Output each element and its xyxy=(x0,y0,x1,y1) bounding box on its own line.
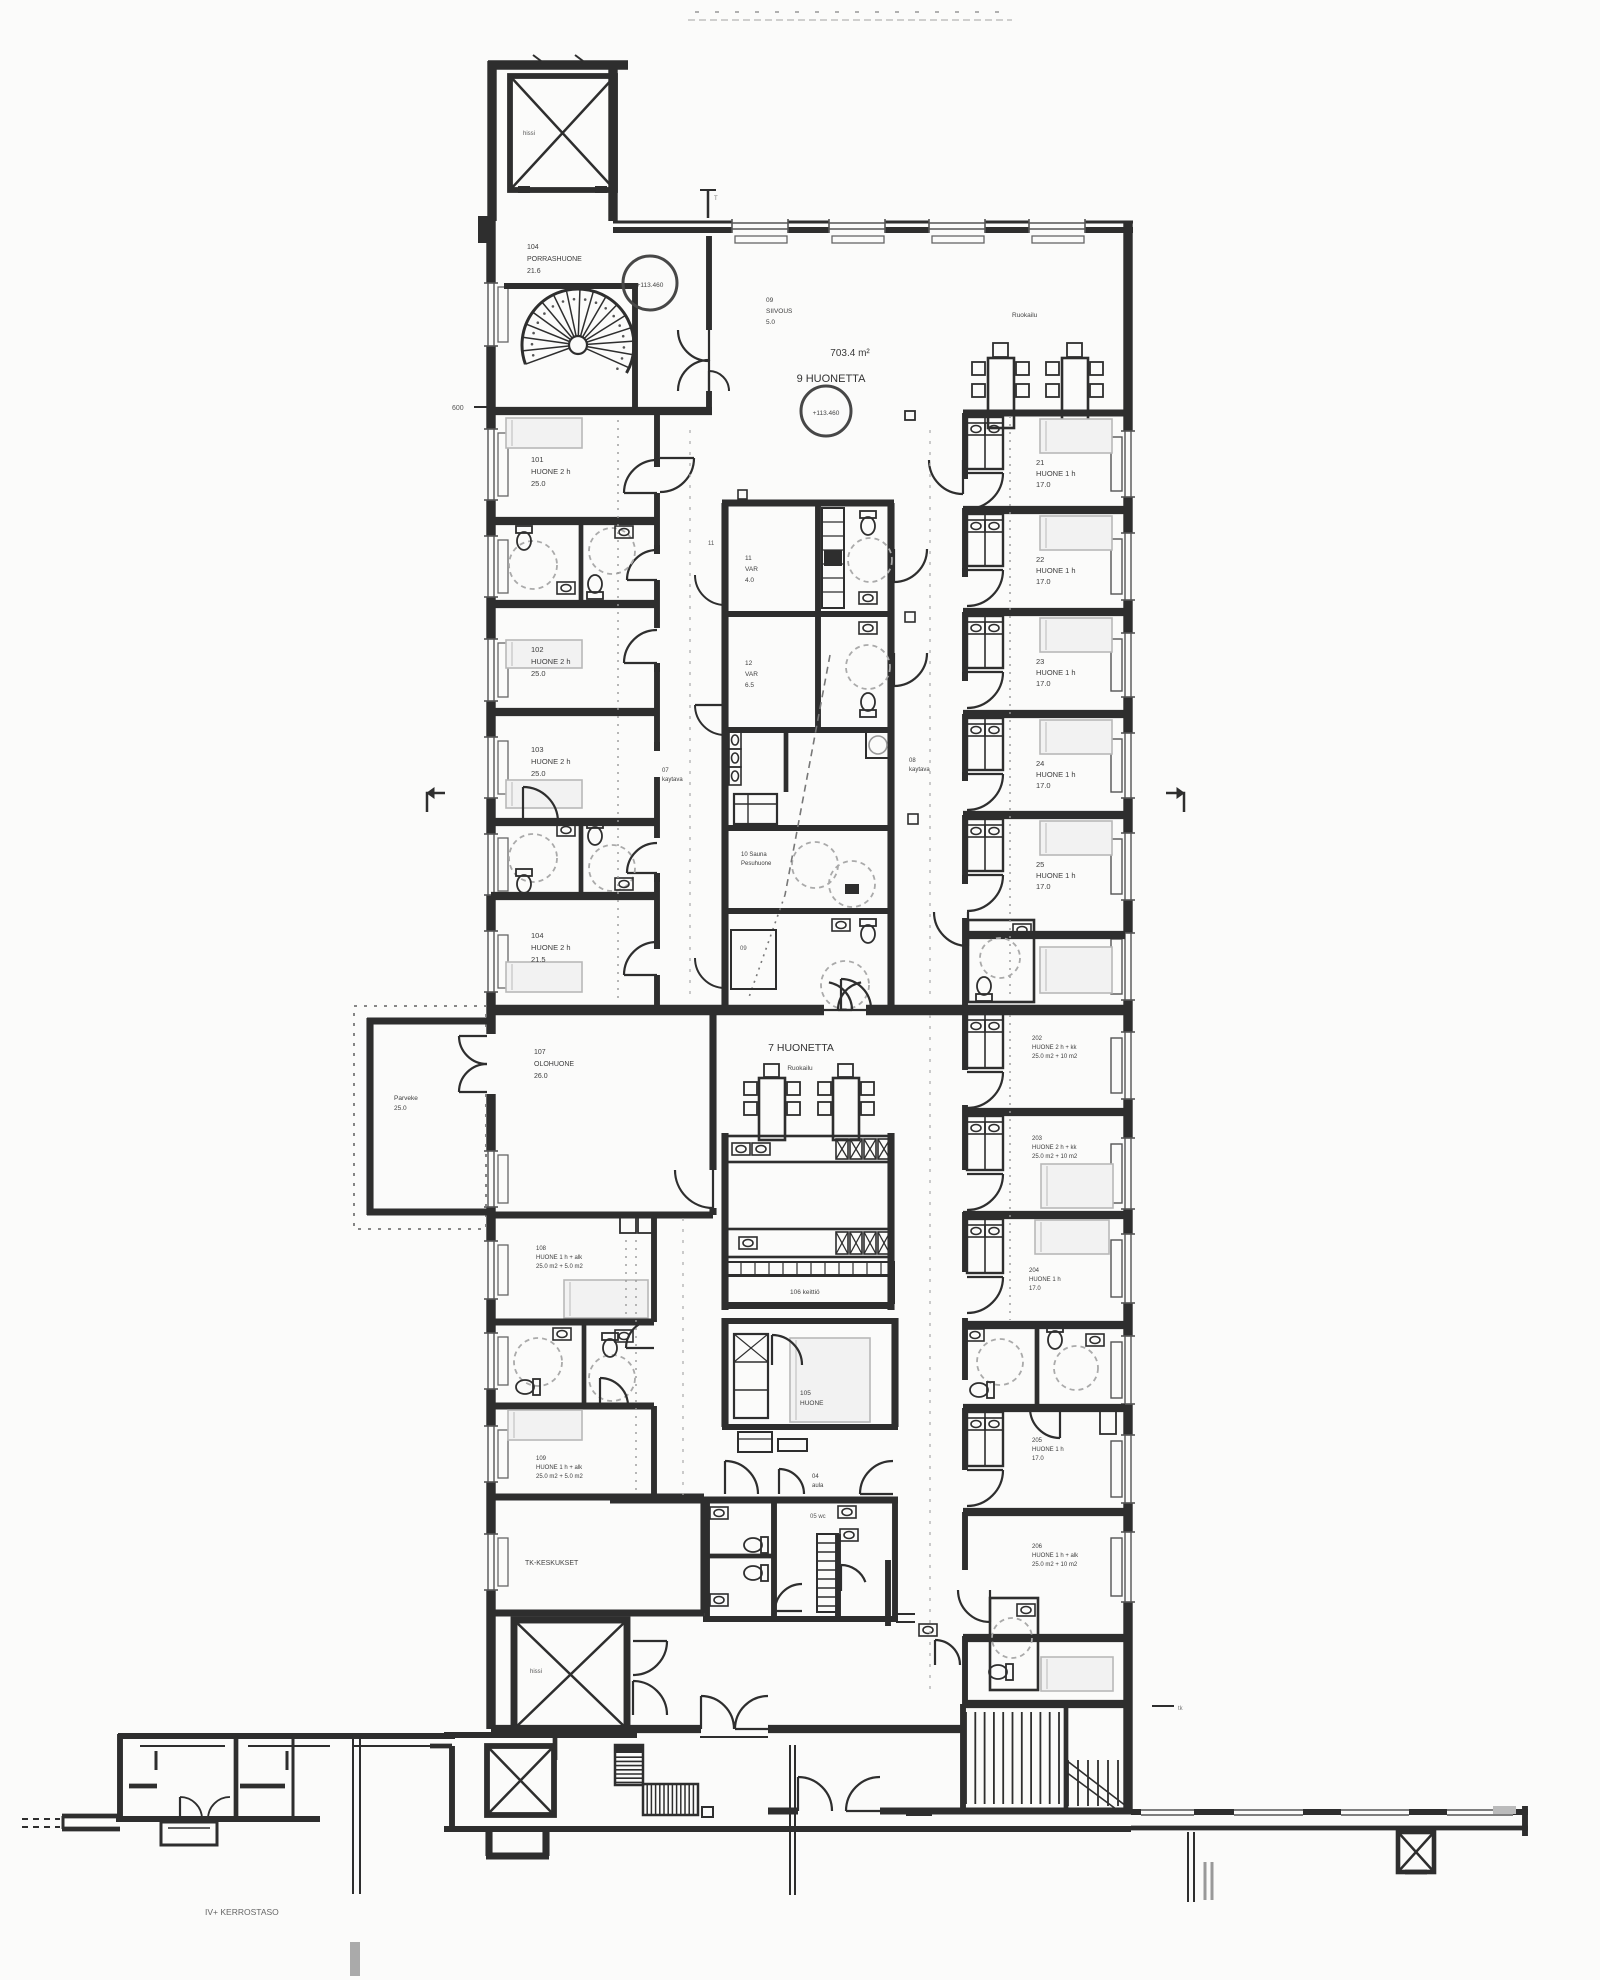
svg-text:hissi: hissi xyxy=(523,131,535,137)
svg-text:107: 107 xyxy=(534,1049,546,1056)
svg-text:104: 104 xyxy=(531,931,544,940)
svg-text:Parveke: Parveke xyxy=(394,1095,418,1102)
svg-text:08: 08 xyxy=(909,758,916,764)
svg-text:Ruokailu: Ruokailu xyxy=(787,1065,813,1072)
svg-text:HUONE 1 h: HUONE 1 h xyxy=(1036,469,1076,478)
svg-text:25.0 m2 + 10 m2: 25.0 m2 + 10 m2 xyxy=(1032,1562,1078,1568)
svg-text:11: 11 xyxy=(708,541,715,547)
svg-text:101: 101 xyxy=(531,455,544,464)
svg-text:204: 204 xyxy=(1029,1268,1040,1274)
svg-text:04: 04 xyxy=(812,1474,819,1480)
svg-text:17.0: 17.0 xyxy=(1036,679,1051,688)
svg-text:HUONE 1 h: HUONE 1 h xyxy=(1036,871,1076,880)
svg-text:+113.460: +113.460 xyxy=(813,410,840,417)
svg-text:703.4 m²: 703.4 m² xyxy=(830,348,870,359)
svg-text:17.0: 17.0 xyxy=(1032,1456,1044,1462)
svg-text:HUONE 1 h + alk: HUONE 1 h + alk xyxy=(536,1465,583,1471)
svg-text:6.5: 6.5 xyxy=(745,682,754,689)
svg-text:HUONE 1 h: HUONE 1 h xyxy=(1036,770,1076,779)
svg-text:HUONE 2 h + kk: HUONE 2 h + kk xyxy=(1032,1045,1078,1051)
svg-text:9 HUONETTA: 9 HUONETTA xyxy=(797,373,867,385)
svg-text:11: 11 xyxy=(745,555,752,562)
svg-text:HUONE 2 h + kk: HUONE 2 h + kk xyxy=(1032,1145,1078,1151)
svg-text:12: 12 xyxy=(745,660,753,667)
svg-text:IV+ KERROSTASO: IV+ KERROSTASO xyxy=(205,1907,279,1917)
svg-text:17.0: 17.0 xyxy=(1036,577,1051,586)
svg-text:25.0 m2 + 10 m2: 25.0 m2 + 10 m2 xyxy=(1032,1054,1078,1060)
svg-text:25.0 m2 + 10 m2: 25.0 m2 + 10 m2 xyxy=(1032,1154,1078,1160)
svg-text:25.0 m2 + 5.0 m2: 25.0 m2 + 5.0 m2 xyxy=(536,1264,584,1270)
svg-text:7 HUONETTA: 7 HUONETTA xyxy=(768,1042,834,1054)
svg-text:4.0: 4.0 xyxy=(745,577,754,584)
svg-text:600: 600 xyxy=(452,405,464,412)
svg-text:HUONE 1 h + alk: HUONE 1 h + alk xyxy=(1032,1553,1079,1559)
svg-text:07: 07 xyxy=(662,768,669,774)
svg-text:5.0: 5.0 xyxy=(766,319,775,326)
svg-text:HUONE 2 h: HUONE 2 h xyxy=(531,757,571,766)
svg-text:HUONE 2 h: HUONE 2 h xyxy=(531,467,571,476)
svg-text:T: T xyxy=(714,196,718,202)
svg-text:24: 24 xyxy=(1036,759,1044,768)
svg-text:kaytava: kaytava xyxy=(909,767,930,773)
svg-text:206: 206 xyxy=(1032,1544,1043,1550)
svg-text:21.5: 21.5 xyxy=(531,955,546,964)
svg-text:kaytava: kaytava xyxy=(662,777,683,783)
svg-text:22: 22 xyxy=(1036,555,1044,564)
svg-text:HUONE 1 h: HUONE 1 h xyxy=(1036,566,1076,575)
svg-text:17.0: 17.0 xyxy=(1029,1286,1041,1292)
svg-text:+113.460: +113.460 xyxy=(637,282,664,289)
svg-text:105: 105 xyxy=(800,1390,811,1397)
svg-text:HUONE 2 h: HUONE 2 h xyxy=(531,943,571,952)
svg-text:TK-KESKUKSET: TK-KESKUKSET xyxy=(525,1560,579,1567)
svg-text:25.0: 25.0 xyxy=(531,669,546,678)
svg-text:OLOHUONE: OLOHUONE xyxy=(534,1061,574,1068)
svg-text:102: 102 xyxy=(531,645,544,654)
svg-text:25.0: 25.0 xyxy=(394,1105,407,1112)
svg-text:106 keittiö: 106 keittiö xyxy=(790,1289,820,1296)
svg-text:aula: aula xyxy=(812,1483,824,1489)
svg-text:23: 23 xyxy=(1036,657,1044,666)
svg-text:Pesuhuone: Pesuhuone xyxy=(741,861,772,867)
svg-text:17.0: 17.0 xyxy=(1036,781,1051,790)
svg-text:203: 203 xyxy=(1032,1136,1043,1142)
svg-text:HUONE 2 h: HUONE 2 h xyxy=(531,657,571,666)
svg-text:VAR: VAR xyxy=(745,566,758,573)
svg-text:21.6: 21.6 xyxy=(527,268,541,275)
svg-text:SIIVOUS: SIIVOUS xyxy=(766,308,793,315)
svg-text:103: 103 xyxy=(531,745,544,754)
svg-text:Ruokailu: Ruokailu xyxy=(1012,312,1038,319)
svg-text:17.0: 17.0 xyxy=(1036,882,1051,891)
svg-text:VAR: VAR xyxy=(745,671,758,678)
svg-text:108: 108 xyxy=(536,1246,547,1252)
svg-text:25.0 m2 + 5.0 m2: 25.0 m2 + 5.0 m2 xyxy=(536,1474,584,1480)
svg-text:HUONE 1 h + alk: HUONE 1 h + alk xyxy=(536,1255,583,1261)
svg-text:10 Sauna: 10 Sauna xyxy=(741,852,767,858)
svg-text:25.0: 25.0 xyxy=(531,479,546,488)
svg-text:26.0: 26.0 xyxy=(534,1073,548,1080)
svg-text:202: 202 xyxy=(1032,1036,1043,1042)
svg-text:205: 205 xyxy=(1032,1438,1043,1444)
svg-text:09: 09 xyxy=(740,946,747,952)
svg-text:104: 104 xyxy=(527,244,539,251)
svg-text:25: 25 xyxy=(1036,860,1044,869)
svg-text:05 wc: 05 wc xyxy=(810,1514,826,1520)
svg-text:25.0: 25.0 xyxy=(531,769,546,778)
svg-text:HUONE: HUONE xyxy=(800,1400,824,1407)
svg-text:21: 21 xyxy=(1036,458,1044,467)
svg-text:09: 09 xyxy=(766,297,774,304)
svg-text:HUONE 1 h: HUONE 1 h xyxy=(1036,668,1076,677)
svg-text:PORRASHUONE: PORRASHUONE xyxy=(527,256,582,263)
svg-text:hissi: hissi xyxy=(530,1669,542,1675)
svg-text:HUONE 1 h: HUONE 1 h xyxy=(1032,1447,1064,1453)
svg-text:HUONE 1 h: HUONE 1 h xyxy=(1029,1277,1061,1283)
svg-text:109: 109 xyxy=(536,1456,547,1462)
svg-text:17.0: 17.0 xyxy=(1036,480,1051,489)
